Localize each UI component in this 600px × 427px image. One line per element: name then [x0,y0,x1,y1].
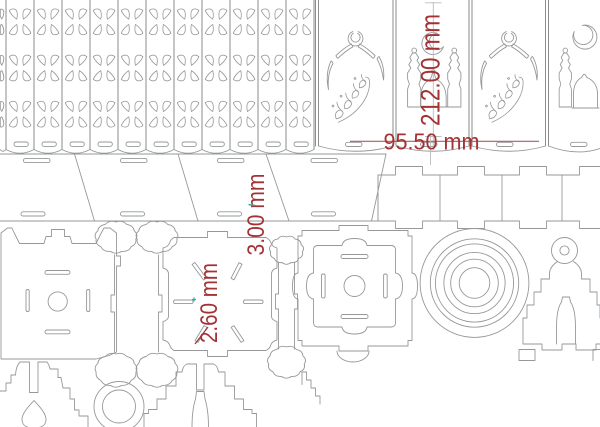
svg-text:3.00 mm: 3.00 mm [243,174,270,256]
svg-text:95.50 mm: 95.50 mm [384,129,480,155]
svg-text:212.00 mm: 212.00 mm [416,14,446,126]
svg-text:2.60 mm: 2.60 mm [196,263,223,343]
